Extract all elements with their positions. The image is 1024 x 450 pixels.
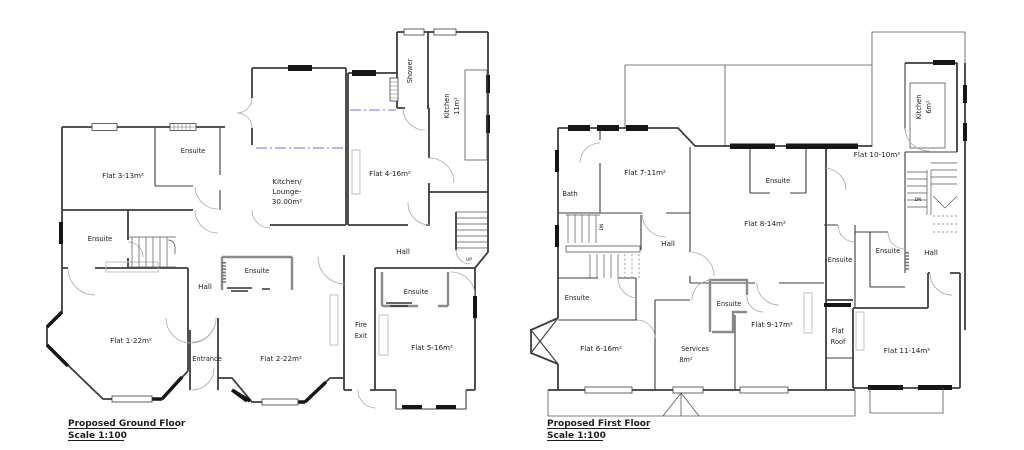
room-label-ensuite: Ensuite [565,294,589,302]
room-label-fire-exit: Exit [355,332,368,340]
ensuite-wall [222,257,448,306]
room-label-flat1: Flat 1-22m² [110,336,152,345]
ground-floor-title: Proposed Ground Floor [68,419,186,429]
roof-outline [625,32,965,147]
room-label-services: 8m² [679,356,693,364]
staircase-up: UP [456,212,488,263]
room-label-ensuite: Ensuite [876,247,900,255]
room-label-kitchen: Kitchen [443,94,451,119]
room-label-services: Services [681,345,709,353]
room-label-bath: Bath [562,190,577,198]
room-label-flat4: Flat 4-16m² [369,169,411,178]
ground-floor-plan: UP Flat 1-22m² Flat 2-22m² Flat 3-13m² F… [47,29,490,441]
room-label-hall: Hall [924,248,938,257]
staircase [128,237,176,267]
room-label-shower: Shower [406,58,414,83]
stairs-up-label: UP [466,257,472,263]
room-label-flat2: Flat 2-22m² [260,354,302,363]
room-label-hall: Hall [661,239,675,248]
room-label-hall: Hall [396,247,410,256]
staircase-down: DN [566,215,640,278]
room-label-ensuite: Ensuite [181,147,205,155]
room-label-kitchen-lounge: Kitchen/ [272,177,302,186]
room-label-flat6: Flat 6-16m² [580,344,622,353]
room-label-flat-roof: Flat [832,327,845,335]
stairs-dn-label: DN [599,224,605,231]
first-floor-scale: Scale 1:100 [547,431,606,441]
window [92,29,456,405]
floorplan-sheet: UP Flat 1-22m² Flat 2-22m² Flat 3-13m² F… [0,0,1024,450]
window [585,387,788,393]
room-label-ensuite: Ensuite [245,267,269,275]
first-floor-title: Proposed First Floor [547,419,651,429]
room-label-entrance: Entrance [192,355,222,363]
kitchen-counter [465,70,487,160]
room-label-ensuite: Ensuite [766,177,790,185]
room-label-flat8: Flat 8-14m² [744,219,786,228]
room-label-kitchen: Kitchen [915,95,923,120]
room-label-fire-exit: Fire [355,321,367,329]
room-label-kitchen-lounge: Lounge- [273,187,302,196]
room-label-kitchen: 11m² [453,97,461,115]
room-label-ensuite: Ensuite [828,256,852,264]
staircase-down: DN [907,163,957,232]
room-label-hall: Hall [198,282,212,291]
ground-floor-scale: Scale 1:100 [68,431,127,441]
sliding-door [227,288,412,306]
room-label-ensuite: Ensuite [88,235,112,243]
room-label-flat11: Flat 11-14m² [884,346,931,355]
floorplan-drawing: UP Flat 1-22m² Flat 2-22m² Flat 3-13m² F… [0,0,1024,450]
room-label-flat3: Flat 3-13m² [102,171,144,180]
section-line [256,110,396,148]
room-label-flat9: Flat 9-17m² [751,320,793,329]
room-label-flat5: Flat 5-16m² [411,343,453,352]
room-label-kitchen: 6m² [925,100,933,114]
room-label-flat10: Flat 10-10m² [854,150,901,159]
room-label-kitchen-lounge: 30.00m² [272,197,303,206]
room-label-flat7: Flat 7-11m² [624,168,666,177]
stairs-dn-label: DN [915,197,922,203]
room-label-flat-roof: Roof [831,338,846,346]
room-label-ensuite: Ensuite [717,300,741,308]
room-label-ensuite: Ensuite [404,288,428,296]
first-floor-plan: DN DN Bath Flat 7-11m² Flat 8-14m² Flat … [531,32,967,441]
